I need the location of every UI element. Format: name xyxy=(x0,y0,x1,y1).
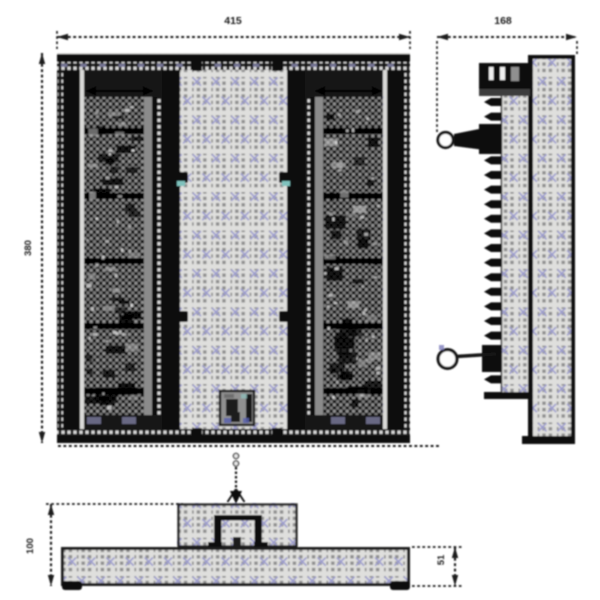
svg-text:415: 415 xyxy=(224,15,242,27)
svg-text:380: 380 xyxy=(23,240,34,256)
svg-text:51: 51 xyxy=(436,554,447,565)
svg-text:168: 168 xyxy=(494,15,512,27)
svg-text:100: 100 xyxy=(25,538,36,554)
